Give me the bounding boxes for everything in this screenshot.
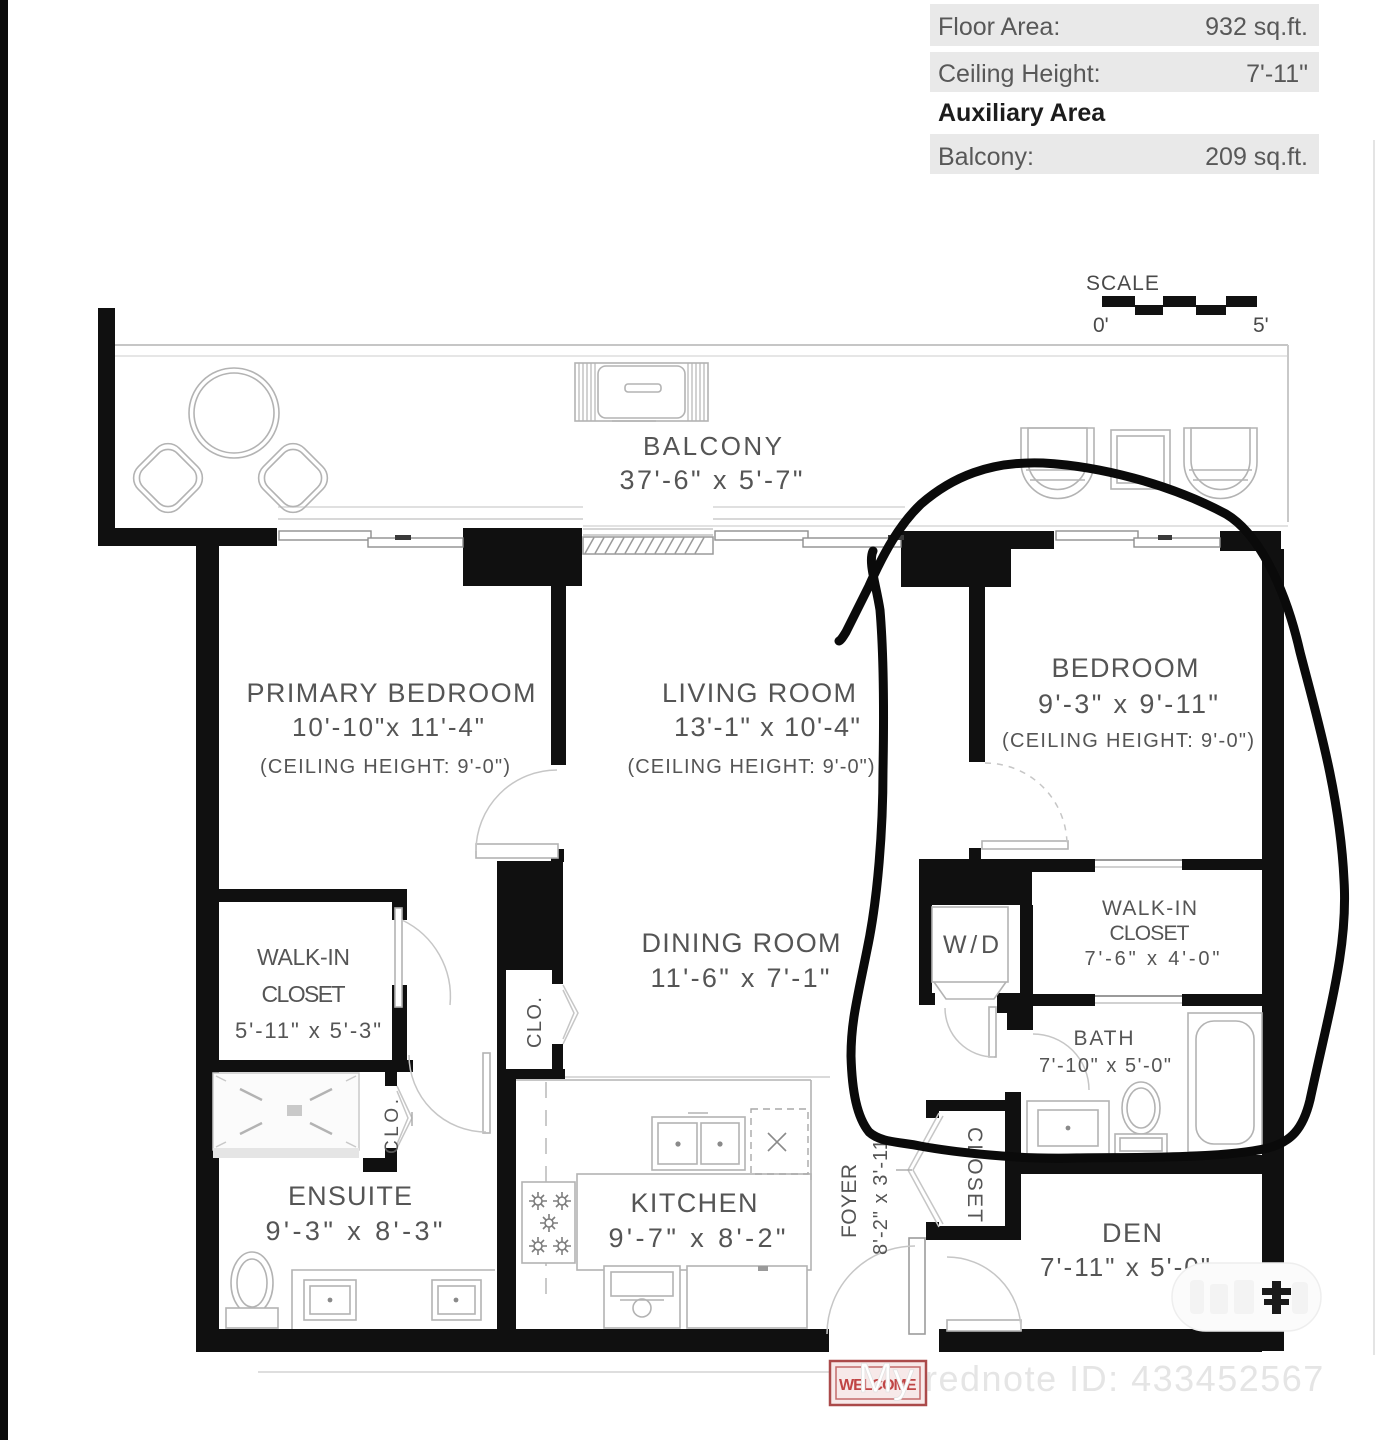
svg-text:CLOSET: CLOSET: [1110, 922, 1191, 945]
svg-text:My: My: [858, 1354, 914, 1401]
svg-text:0': 0': [1093, 314, 1109, 337]
svg-text:13'-1" x 10'-4": 13'-1" x 10'-4": [674, 712, 860, 742]
svg-text:BEDROOM: BEDROOM: [1052, 653, 1201, 683]
svg-text:209 sq.ft.: 209 sq.ft.: [1205, 143, 1308, 171]
svg-text:11'-6" x 7'-1": 11'-6" x 7'-1": [651, 963, 830, 993]
svg-text:9'-7" x 8'-2": 9'-7" x 8'-2": [609, 1223, 786, 1253]
svg-text:(CEILING HEIGHT: 9'-0"): (CEILING HEIGHT: 9'-0"): [1002, 730, 1254, 752]
svg-text:LIVING ROOM: LIVING ROOM: [662, 678, 858, 708]
svg-text:7'-11": 7'-11": [1246, 60, 1308, 88]
svg-text:(CEILING HEIGHT: 9'-0"): (CEILING HEIGHT: 9'-0"): [260, 756, 510, 778]
svg-text:FOYER: FOYER: [838, 1163, 861, 1238]
svg-text:5': 5': [1253, 314, 1269, 337]
svg-text:CLOSET: CLOSET: [963, 1127, 986, 1223]
svg-text:10'-10"x 11'-4": 10'-10"x 11'-4": [292, 712, 484, 742]
svg-text:932 sq.ft.: 932 sq.ft.: [1205, 13, 1308, 41]
svg-text:rednote ID: 433452567: rednote ID: 433452567: [925, 1358, 1325, 1399]
svg-text:BALCONY: BALCONY: [643, 431, 783, 461]
svg-text:9'-3" x 8'-3": 9'-3" x 8'-3": [266, 1216, 443, 1246]
svg-text:SCALE: SCALE: [1086, 272, 1160, 295]
svg-text:DEN: DEN: [1102, 1218, 1164, 1248]
svg-text:CLOSET: CLOSET: [262, 981, 347, 1007]
svg-text:WALK-IN: WALK-IN: [257, 944, 351, 970]
svg-text:ENSUITE: ENSUITE: [288, 1181, 414, 1211]
svg-text:Floor Area:: Floor Area:: [938, 13, 1060, 41]
svg-text:CLO.: CLO.: [524, 997, 546, 1048]
svg-text:7'-6" x 4'-0": 7'-6" x 4'-0": [1085, 948, 1220, 970]
svg-text:W/D: W/D: [943, 931, 999, 959]
svg-text:Auxiliary Area: Auxiliary Area: [938, 99, 1106, 127]
svg-text:DINING ROOM: DINING ROOM: [642, 928, 843, 958]
svg-text:Balcony:: Balcony:: [938, 143, 1034, 171]
svg-text:8'-2" x 3'-11": 8'-2" x 3'-11": [870, 1131, 892, 1255]
svg-text:Ceiling Height:: Ceiling Height:: [938, 60, 1101, 88]
svg-text:KITCHEN: KITCHEN: [631, 1188, 760, 1218]
svg-text:BATH: BATH: [1074, 1027, 1135, 1050]
svg-text:5'-11" x 5'-3": 5'-11" x 5'-3": [235, 1018, 381, 1043]
svg-text:(CEILING HEIGHT: 9'-0"): (CEILING HEIGHT: 9'-0"): [628, 756, 875, 778]
svg-text:WALK-IN: WALK-IN: [1102, 897, 1198, 920]
svg-text:PRIMARY BEDROOM: PRIMARY BEDROOM: [247, 678, 538, 708]
